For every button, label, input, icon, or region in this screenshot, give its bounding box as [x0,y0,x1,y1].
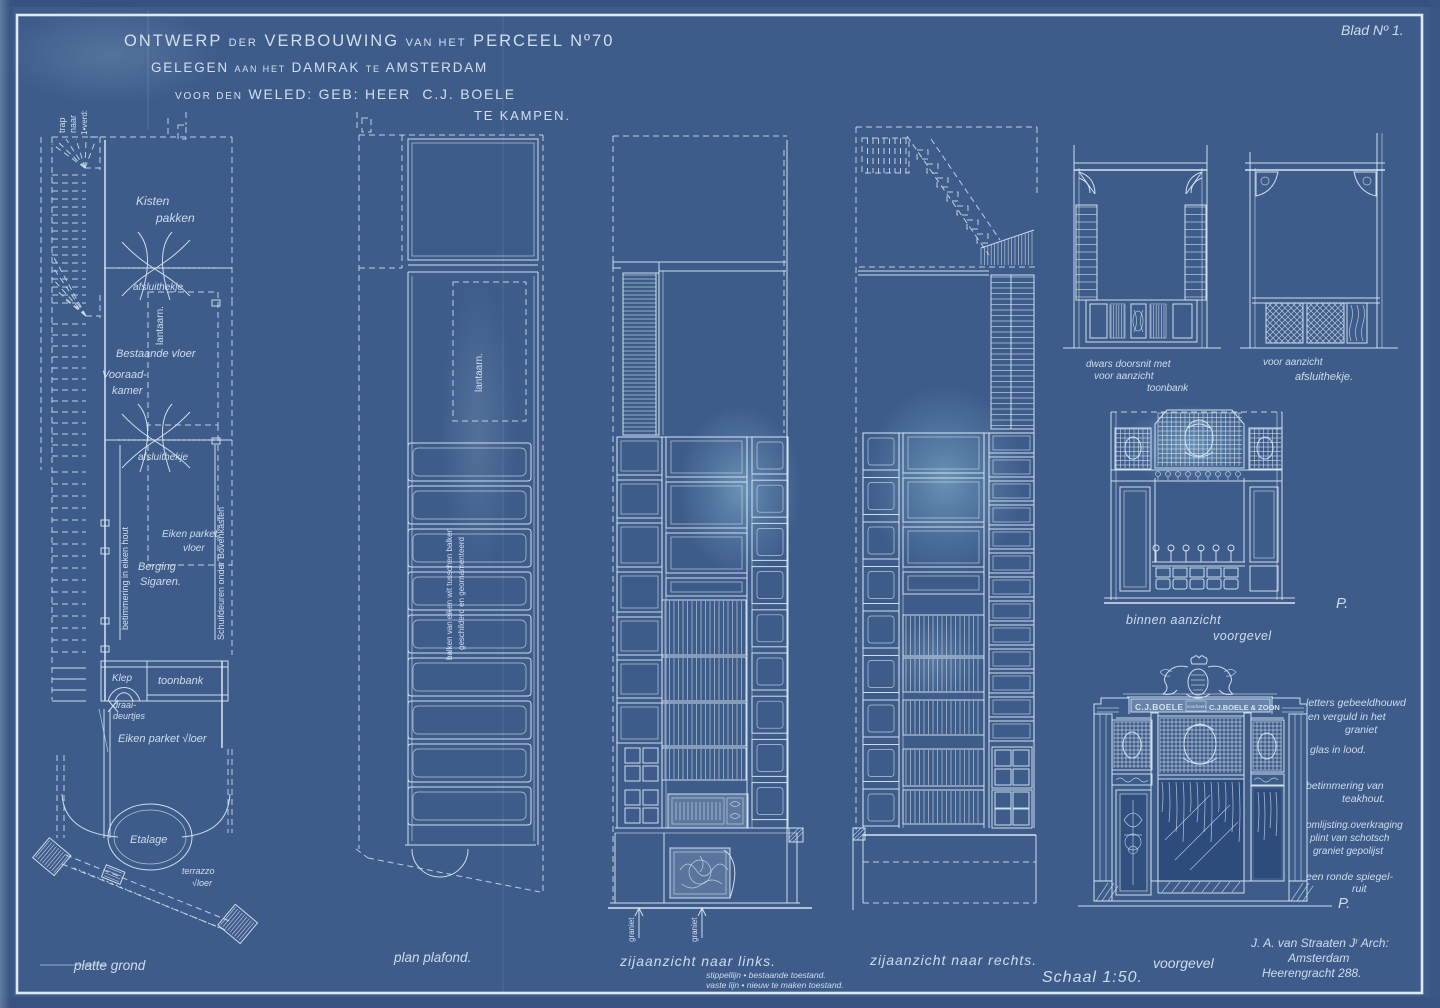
svg-text:√loer: √loer [192,878,213,888]
svg-text:J. A. van Straaten Jʳ Arch:: J. A. van Straaten Jʳ Arch: [1250,936,1389,950]
svg-text:voor aanzicht: voor aanzicht [1094,371,1155,382]
svg-text:zijaanzicht naar links.: zijaanzicht naar links. [619,953,776,969]
svg-text:graniet: graniet [690,917,699,942]
svg-text:GELEGEN AAN HET DAMRAK TE AMST: GELEGEN AAN HET DAMRAK TE AMSTERDAM [151,60,488,75]
svg-text:graniet gepolijst: graniet gepolijst [1313,846,1384,857]
svg-text:1•verd:: 1•verd: [80,110,89,135]
svg-text:deurtjes: deurtjes [113,711,146,721]
svg-text:graniet: graniet [627,917,636,942]
svg-text:terrazzo: terrazzo [182,866,215,876]
svg-text:C.J.BOELE & ZOON: C.J.BOELE & ZOON [1209,703,1280,712]
svg-text:Amsterdam: Amsterdam [1287,951,1349,965]
svg-text:Schaal 1:50.: Schaal 1:50. [1042,969,1143,986]
svg-text:lantaarn.: lantaarn. [155,306,166,345]
svg-text:lantaarn.: lantaarn. [474,353,485,392]
svg-text:stippellijn • bestaande toesta: stippellijn • bestaande toestand. [706,970,826,980]
svg-text:voor aanzicht: voor aanzicht [1263,357,1324,368]
svg-text:pakken: pakken [155,211,195,225]
svg-text:afsluithekje.: afsluithekje. [1295,371,1353,383]
svg-text:Schuifdeuren onder Bovenkasten: Schuifdeuren onder Bovenkasten [216,507,226,640]
svg-text:ONTWERP DER VERBOUWING VAN HET: ONTWERP DER VERBOUWING VAN HET PERCEEL N… [124,32,614,50]
svg-text:voorheen: voorheen [1187,704,1206,709]
svg-text:afsluithekje: afsluithekje [138,452,188,463]
svg-text:letters gebeeldhouwd: letters gebeeldhouwd [1306,697,1407,709]
svg-text:zijaanzicht naar rechts.: zijaanzicht naar rechts. [869,952,1037,968]
svg-text:binnen aanzicht: binnen aanzicht [1126,613,1221,627]
svg-text:Eiken parket √loer: Eiken parket √loer [118,733,208,745]
svg-text:voorgevel: voorgevel [1153,955,1215,971]
svg-text:omlijsting.overkraging: omlijsting.overkraging [1306,820,1403,831]
svg-text:geschilderd en geornamenteerd: geschilderd en geornamenteerd [457,537,466,650]
svg-text:Kisten: Kisten [136,194,170,208]
svg-text:graniet: graniet [1345,724,1378,736]
svg-text:teakhout.: teakhout. [1342,793,1385,805]
svg-text:toonbank: toonbank [158,675,204,687]
svg-text:vloer: vloer [183,543,205,554]
svg-text:glas in lood.: glas in lood. [1310,744,1366,756]
svg-text:betimmering in eiken hout: betimmering in eiken hout [120,526,130,630]
svg-text:platte grond: platte grond [73,958,146,973]
svg-text:Blad Nº 1.: Blad Nº 1. [1341,22,1404,38]
svg-text:trap: trap [57,117,67,133]
svg-text:een ronde spiegel-: een ronde spiegel- [1306,871,1393,883]
svg-text:balken van eiken wit tusschen: balken van eiken wit tusschen balken [445,528,454,660]
svg-text:dwars doorsnit met: dwars doorsnit met [1086,359,1172,370]
svg-text:plan plafond.: plan plafond. [393,950,471,965]
svg-text:TE KAMPEN.: TE KAMPEN. [474,108,571,123]
svg-text:en verguld in het: en verguld in het [1308,711,1387,723]
svg-text:Sigaren.: Sigaren. [140,576,181,588]
svg-text:Berging: Berging [138,561,177,573]
svg-text:vaste lijn • nieuw te maken to: vaste lijn • nieuw te maken toestand. [706,980,844,990]
svg-text:betimmering van: betimmering van [1306,780,1384,792]
svg-text:Vooraad-: Vooraad- [102,369,147,381]
svg-text:kamer: kamer [112,385,144,397]
svg-text:ruit: ruit [1352,883,1368,895]
svg-text:Bestaande vloer: Bestaande vloer [116,348,197,360]
svg-text:Klep: Klep [112,673,132,684]
svg-text:Eiken parket: Eiken parket [162,529,219,540]
svg-text:afsluithekje: afsluithekje [133,282,183,293]
svg-text:C.J.BOELE: C.J.BOELE [1135,702,1183,712]
svg-text:Etalage: Etalage [130,834,167,846]
svg-text:P.: P. [1338,895,1350,912]
svg-text:Heerengracht 288.: Heerengracht 288. [1262,966,1361,980]
svg-text:plint van schotsch: plint van schotsch [1309,833,1390,844]
svg-text:toonbank: toonbank [1147,383,1189,394]
svg-text:voorgevel: voorgevel [1213,629,1272,643]
svg-text:naar: naar [68,115,78,133]
svg-text:P.: P. [1336,595,1348,612]
